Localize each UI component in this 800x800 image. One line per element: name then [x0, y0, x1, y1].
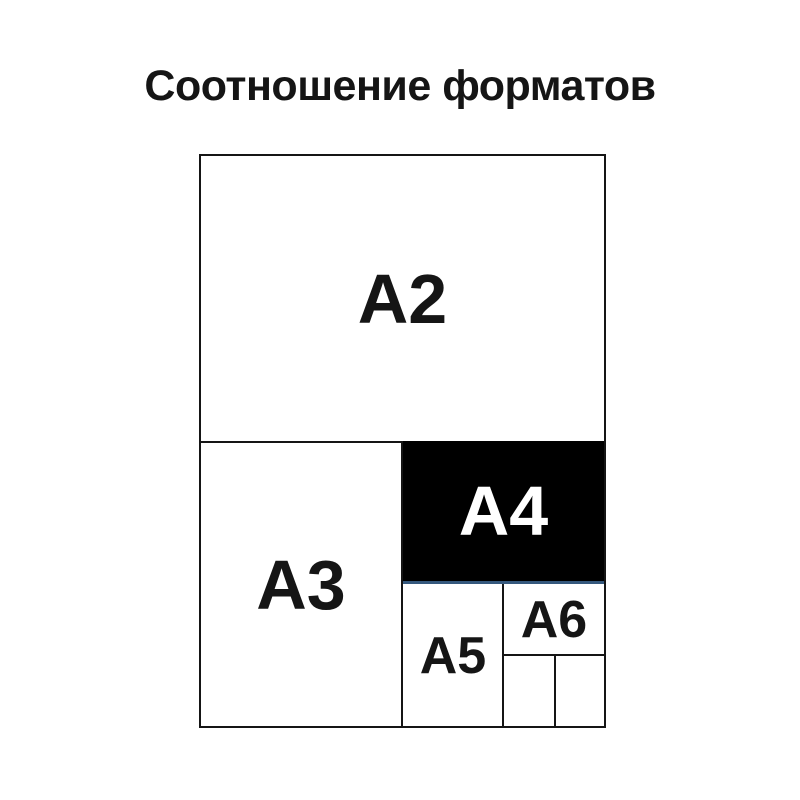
a1-sheet-outline: A2 A3 A4 A5 A6	[199, 154, 606, 728]
format-cell-a4: A4	[403, 441, 604, 584]
format-label-a2: A2	[358, 259, 447, 339]
format-cell-a2: A2	[201, 156, 604, 441]
format-cell-a6: A6	[504, 586, 604, 654]
format-label-a6: A6	[521, 590, 587, 650]
format-label-a5: A5	[420, 626, 486, 686]
format-label-a3: A3	[256, 545, 345, 625]
format-cell-sub-right	[556, 656, 604, 726]
page-title: Соотношение форматов	[0, 62, 800, 111]
format-cell-a5: A5	[404, 586, 502, 726]
format-cell-a3: A3	[201, 443, 401, 726]
paper-format-ratio-diagram: Соотношение форматов A2 A3 A4 A5 A6	[0, 0, 800, 800]
format-cell-sub-left	[504, 656, 554, 726]
format-label-a4: A4	[459, 471, 548, 551]
